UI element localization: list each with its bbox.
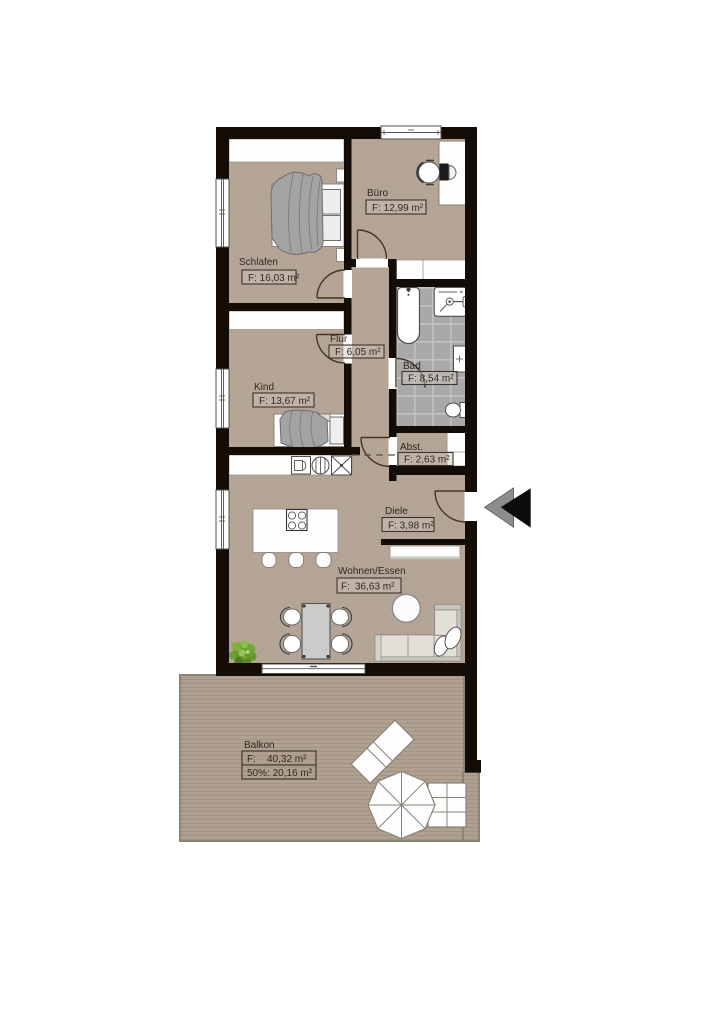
- svg-text:F: 13,67 m²: F: 13,67 m²: [259, 396, 311, 407]
- svg-text:F: 6,05 m²: F: 6,05 m²: [335, 347, 381, 358]
- svg-text:F: 16,03 m²: F: 16,03 m²: [248, 273, 300, 284]
- svg-text:F:: F:: [341, 582, 350, 593]
- svg-text:50%: 20,16 m²: 50%: 20,16 m²: [247, 768, 313, 779]
- svg-text:Diele: Diele: [385, 506, 408, 517]
- svg-text:40,32 m²: 40,32 m²: [267, 754, 307, 765]
- svg-text:Abst.: Abst.: [400, 442, 423, 453]
- svg-text:Flur: Flur: [330, 334, 348, 345]
- svg-text:Bad: Bad: [403, 361, 421, 372]
- svg-text:Kind: Kind: [254, 382, 274, 393]
- svg-text:36,63 m²: 36,63 m²: [355, 582, 395, 593]
- svg-text:Balkon: Balkon: [244, 740, 275, 751]
- svg-text:F: 3,98 m²: F: 3,98 m²: [388, 521, 434, 532]
- svg-text:F: 2,63 m²: F: 2,63 m²: [404, 455, 450, 466]
- svg-text:F: 8,54 m²: F: 8,54 m²: [408, 374, 454, 385]
- svg-text:F:: F:: [247, 754, 256, 765]
- svg-text:Schlafen: Schlafen: [239, 257, 278, 268]
- svg-text:Büro: Büro: [367, 188, 389, 199]
- svg-text:Wohnen/Essen: Wohnen/Essen: [338, 566, 406, 577]
- svg-text:F: 12,99 m²: F: 12,99 m²: [372, 203, 424, 214]
